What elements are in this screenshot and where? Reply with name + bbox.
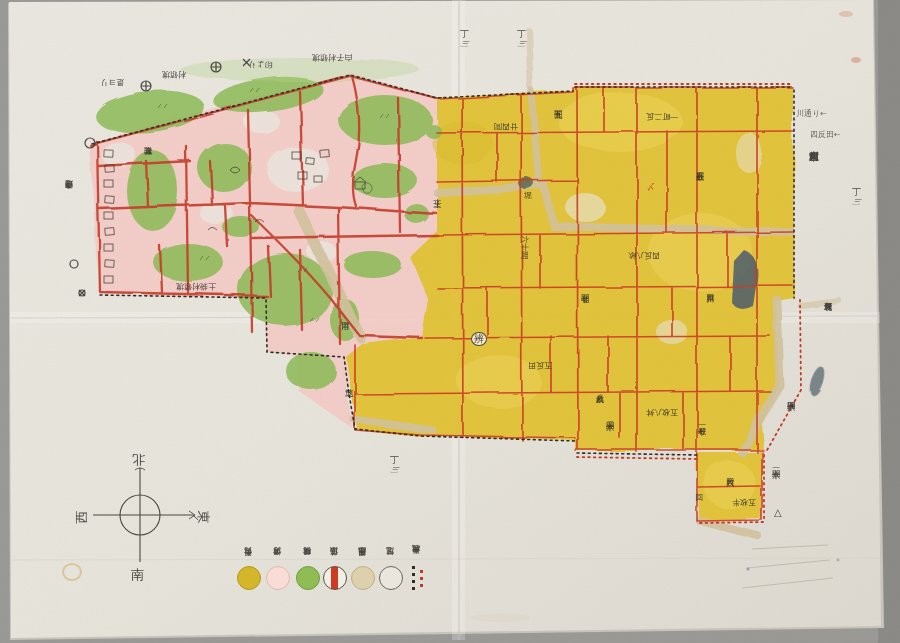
top-boundary-label-shirako: 白子村領境 (312, 53, 352, 61)
crossed-circle-marker (211, 62, 221, 72)
map-legend: 田方黄色 畑方薄赤 秣場萌黄 道法赤筋 用悪水路土色 堤芝地 村境黒朱点 (230, 458, 440, 592)
measure-mark-top: 丁 (460, 30, 469, 39)
legend-swatch-green (296, 566, 320, 590)
margin-note: 四反田← (810, 131, 841, 139)
legend-entry-rice-field: 田方黄色 (236, 458, 262, 590)
black-dash-sample (412, 566, 415, 590)
top-boundary-label: 是ヨリ (100, 78, 124, 86)
compass-cross (75, 448, 210, 583)
measure-mark-bottom: 三 (516, 41, 527, 48)
southwest-boundary-label: 土袋村領境 (176, 282, 216, 290)
measure-mark-bottom: 三 (459, 41, 470, 48)
compass-south: 南 (131, 566, 144, 584)
measure-mark-top: 丁 (517, 30, 526, 39)
measure-mark: 丁 三 (852, 188, 861, 206)
measure-mark: 丁 三 (517, 30, 526, 48)
parcel-label: 四反八畝 (628, 251, 660, 259)
compass-rose: 北 南 東 西 (75, 448, 210, 583)
legend-entry-levee-grass: 堤芝地 (378, 458, 404, 590)
top-boundary-label: 村領境 (162, 70, 186, 78)
pond-label: 堀 (524, 192, 532, 200)
measure-mark-top: 丁 (852, 188, 861, 197)
legend-swatch-pink (266, 566, 290, 590)
top-boundary-label: 印より (248, 60, 272, 68)
measure-mark-bottom: 三 (851, 199, 862, 206)
compass-east: 東 (194, 511, 212, 524)
red-dash-sample (420, 570, 423, 590)
compass-north: 北 (132, 450, 145, 468)
legend-swatch-tan (351, 566, 375, 590)
crossed-circle-marker (141, 81, 151, 91)
legend-swatch-red-stripe (323, 566, 347, 590)
village-map-scan: 是ヨリ 村領境 印より 白子村領境 小合溜井通 土袋村領境 沼田 芝地 真隆寺 … (0, 0, 900, 643)
legend-swatch-dashes (412, 564, 423, 590)
legend-entry-road: 道法赤筋 (322, 458, 348, 590)
red-check-mark: 〆 (647, 184, 655, 192)
compass-west: 西 (73, 511, 91, 524)
square-marker: 回 (695, 494, 703, 502)
margin-note: 川通り← (796, 110, 827, 118)
legend-entry-upland-field: 畑方薄赤 (265, 458, 291, 590)
legend-swatch-yellow (237, 566, 261, 590)
parcel-label: 五反田 (528, 361, 552, 369)
parcel-label: 五枚半 (732, 498, 756, 506)
measure-mark: 丁 三 (460, 30, 469, 48)
legend-swatch-outline (379, 566, 403, 590)
parcel-label: 六十間 (520, 235, 528, 259)
parcel-label: 五枚八舛 (646, 408, 678, 416)
triangle-marker: △ (774, 508, 782, 518)
parcel-label: 廿四間 (494, 122, 518, 130)
parcel-label: 一町二反 (646, 112, 678, 120)
legend-entry-boundary-marks: 村境黒朱点 (404, 458, 430, 590)
legend-entry-waterway: 用悪水路土色 (350, 458, 376, 590)
legend-entry-meadow: 秣場萌黄 (295, 458, 321, 590)
